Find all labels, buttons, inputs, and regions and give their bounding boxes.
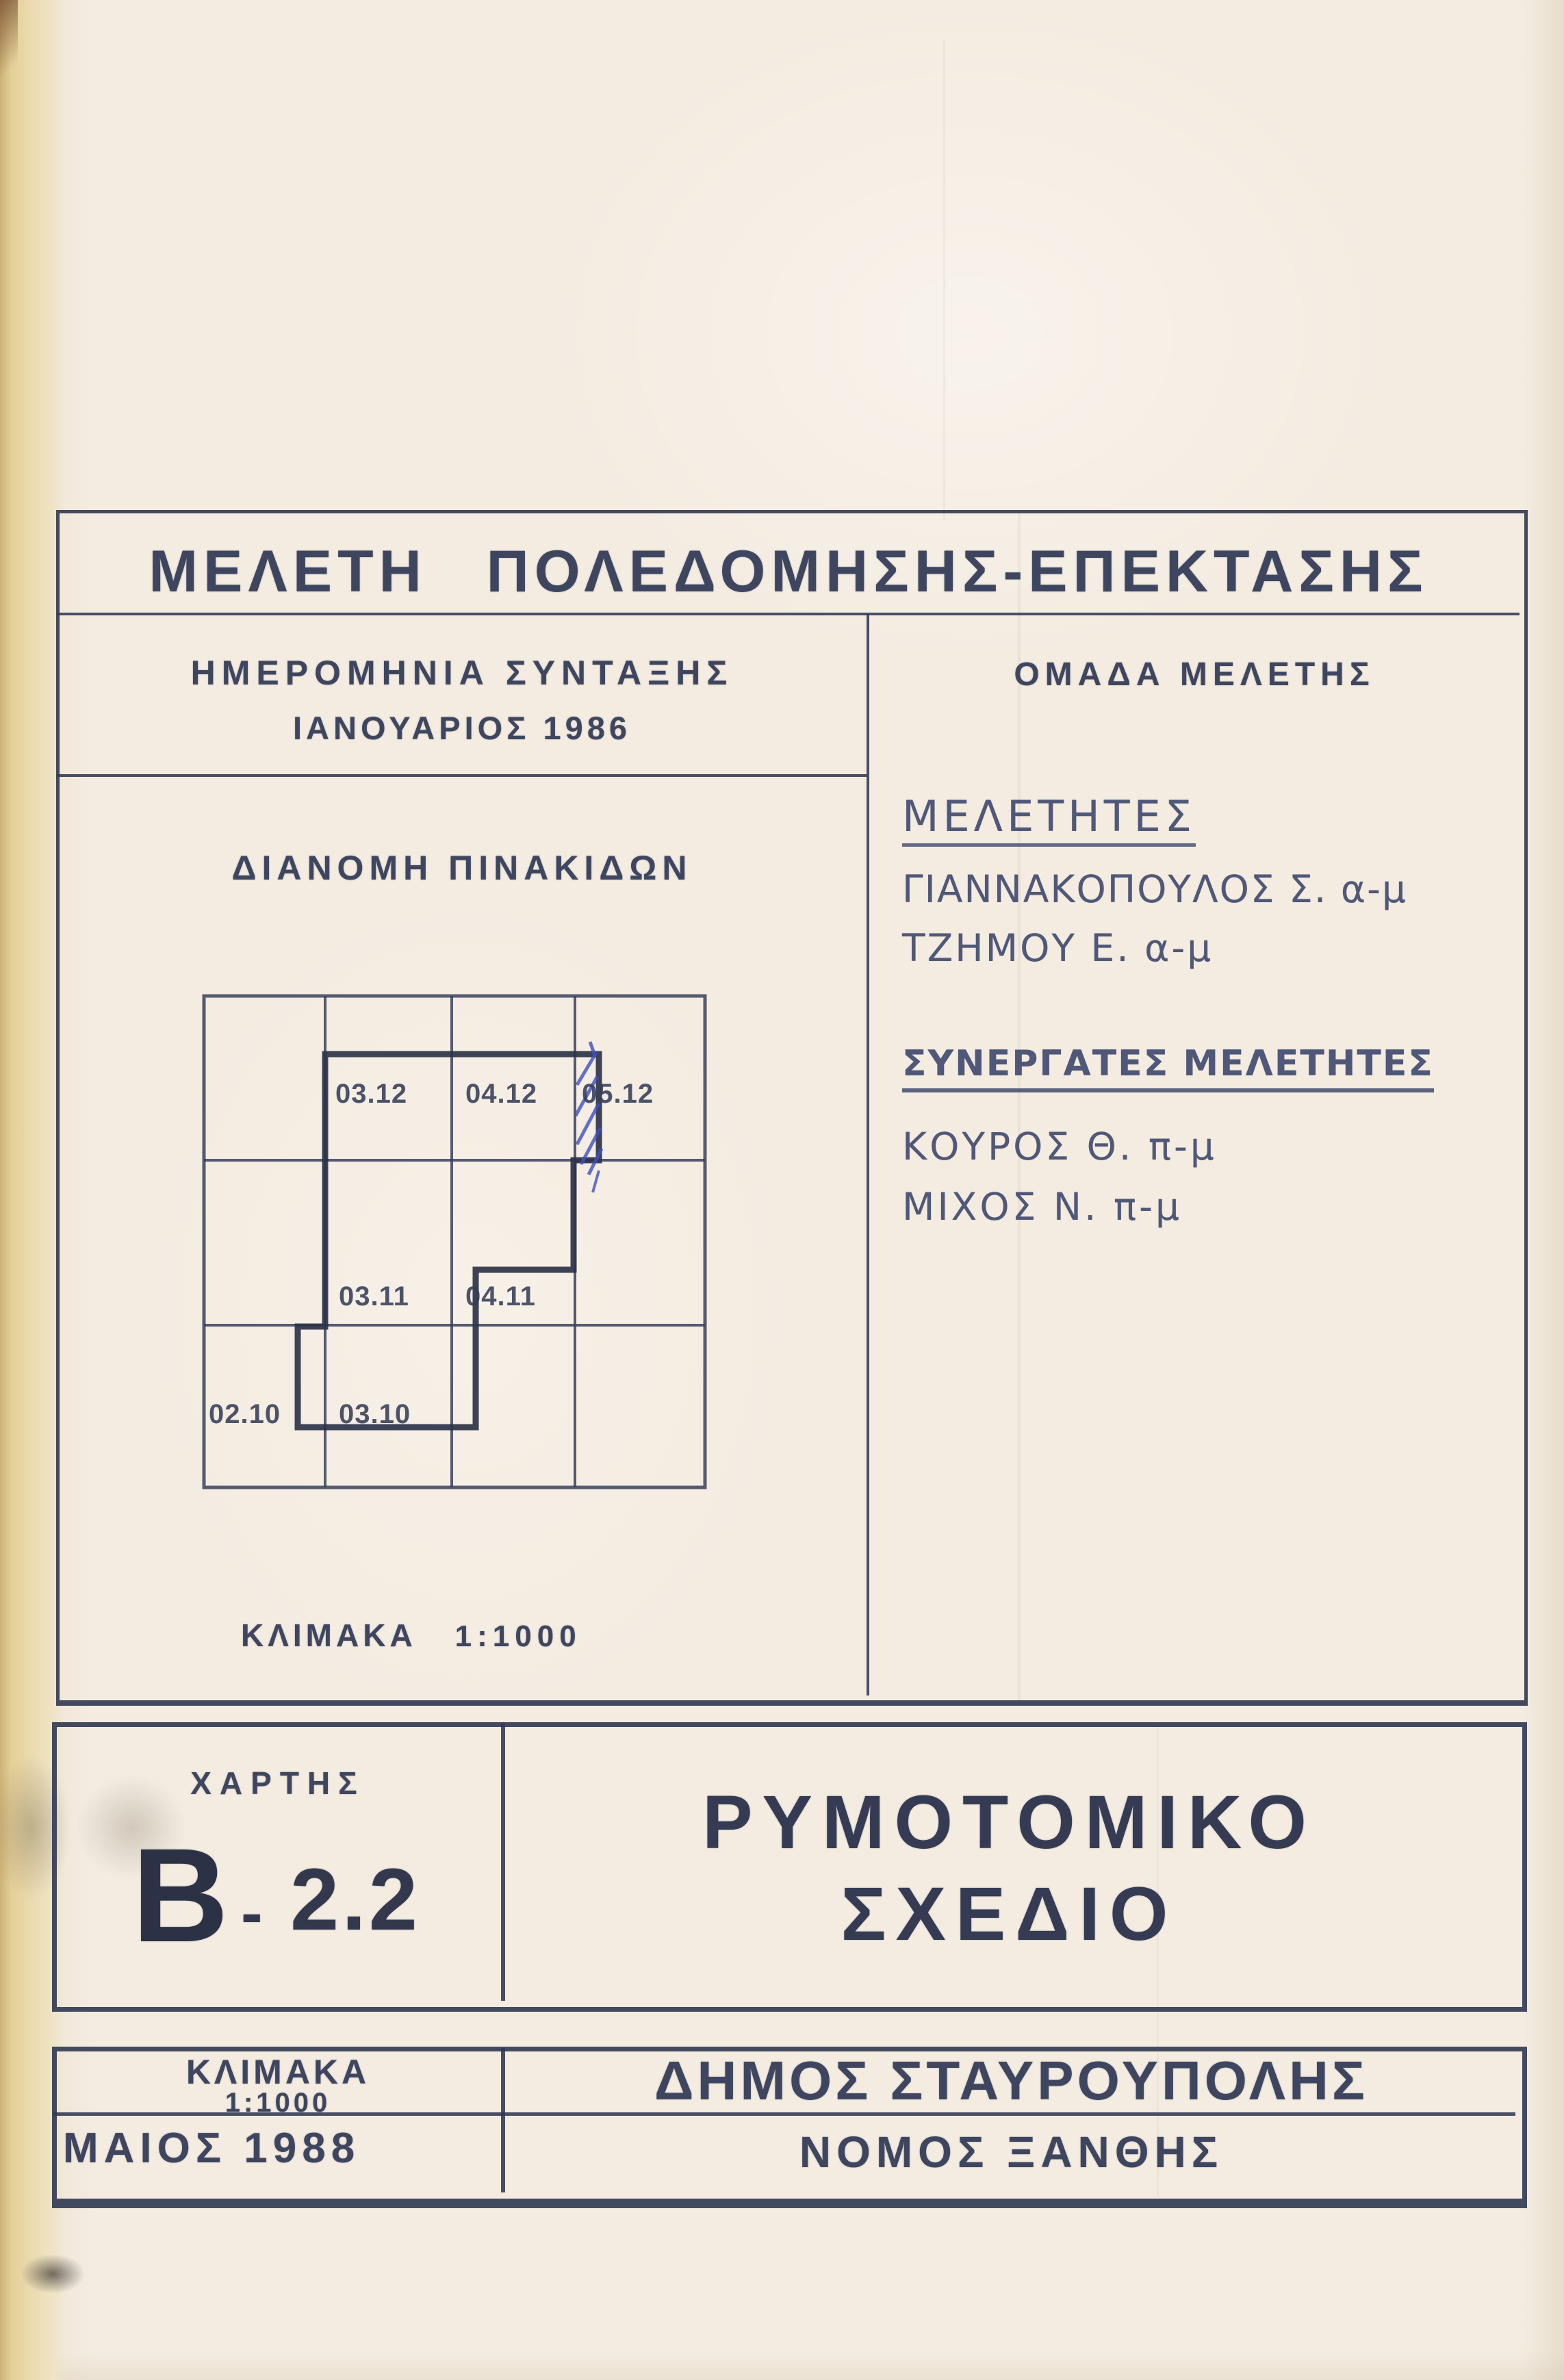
left-column-rule — [57, 774, 867, 777]
footer-scale-value: 1:1000 — [55, 2089, 501, 2116]
researchers-heading: ΜΕΛΕΤΗΤΕΣ — [902, 795, 1196, 847]
footer-date: ΜΑΙΟΣ 1988 — [63, 2127, 360, 2170]
map-title-line2: ΣΧΕΔΙΟ — [501, 1877, 1517, 1952]
researcher-name: ΤΖΗΜΟΥ Ε. α-μ — [902, 930, 1213, 967]
paper-crease — [943, 41, 945, 520]
map-code-number: 2.2 — [290, 1856, 420, 1944]
map-block-divider — [501, 1724, 505, 2001]
sheet-tile-label: 04.11 — [465, 1281, 536, 1311]
map-code-dash: - — [241, 1881, 263, 1946]
title-separator-line — [57, 613, 1520, 615]
map-title-line1: ΡΥΜΟΤΟΜΙΚΟ — [501, 1785, 1517, 1860]
sheet-index-heading: ΔΙΑΝΟΜΗ ΠΙΝΑΚΙΔΩΝ — [57, 851, 867, 885]
sheet-tile-label: 02.10 — [209, 1399, 281, 1429]
diagram-scale-value: 1:1000 — [455, 1622, 582, 1652]
column-divider-line — [867, 614, 869, 1696]
collaborator-name: ΜΙΧΟΣ Ν. π-μ — [902, 1188, 1182, 1226]
map-code-letter: Β — [132, 1829, 229, 1962]
study-area-outline — [298, 1054, 599, 1427]
footer-scale-label: ΚΛΙΜΑΚΑ — [55, 2055, 501, 2089]
diagram-scale: ΚΛΙΜΑΚΑ 1:1000 — [241, 1620, 582, 1652]
date-value: ΙΑΝΟΥΑΡΙΟΣ 1986 — [57, 712, 867, 744]
sheet-tile-label: 03.12 — [335, 1079, 407, 1109]
paper-ink-blot — [8, 2247, 97, 2301]
footer-divider — [501, 2048, 505, 2192]
scanned-document-page: ΜΕΛΕΤΗ ΠΟΛΕΔΟΜΗΣΗΣ-ΕΠΕΚΤΑΣΗΣ ΗΜΕΡΟΜΗΝΙΑ … — [0, 0, 1564, 2380]
map-label: ΧΑΡΤΗΣ — [55, 1767, 501, 1799]
collaborators-heading: ΣΥΝΕΡΓΑΤΕΣ ΜΕΛΕΤΗΤΕΣ — [902, 1046, 1434, 1092]
hatch-stroke — [593, 1170, 599, 1192]
prefecture: ΝΟΜΟΣ ΞΑΝΘΗΣ — [507, 2130, 1516, 2174]
collaborator-name: ΚΟΥΡΟΣ Θ. π-μ — [902, 1128, 1217, 1166]
sheet-index-diagram: 03.12 04.12 05.12 03.11 04.11 02.10 03.1… — [185, 972, 726, 1513]
sheet-tile-label: 04.12 — [465, 1079, 537, 1109]
sheet-tile-label: 03.10 — [339, 1399, 411, 1429]
document-title: ΜΕΛΕΤΗ ΠΟΛΕΔΟΜΗΣΗΣ-ΕΠΕΚΤΑΣΗΣ — [60, 542, 1517, 601]
municipality: ΔΗΜΟΣ ΣΤΑΥΡΟΥΠΟΛΗΣ — [507, 2053, 1516, 2108]
sheet-tile-label: 05.12 — [582, 1079, 654, 1109]
paper-corner-stain — [0, 0, 18, 82]
date-heading: ΗΜΕΡΟΜΗΝΙΑ ΣΥΝΤΑΞΗΣ — [57, 656, 867, 690]
sheet-tile-label: 03.11 — [339, 1281, 409, 1311]
diagram-scale-label: ΚΛΙΜΑΚΑ — [241, 1620, 417, 1651]
team-heading: ΟΜΑΔΑ ΜΕΛΕΤΗΣ — [869, 658, 1520, 691]
researcher-name: ΓΙΑΝΝΑΚΟΠΟΥΛΟΣ Σ. α-μ — [902, 871, 1407, 908]
